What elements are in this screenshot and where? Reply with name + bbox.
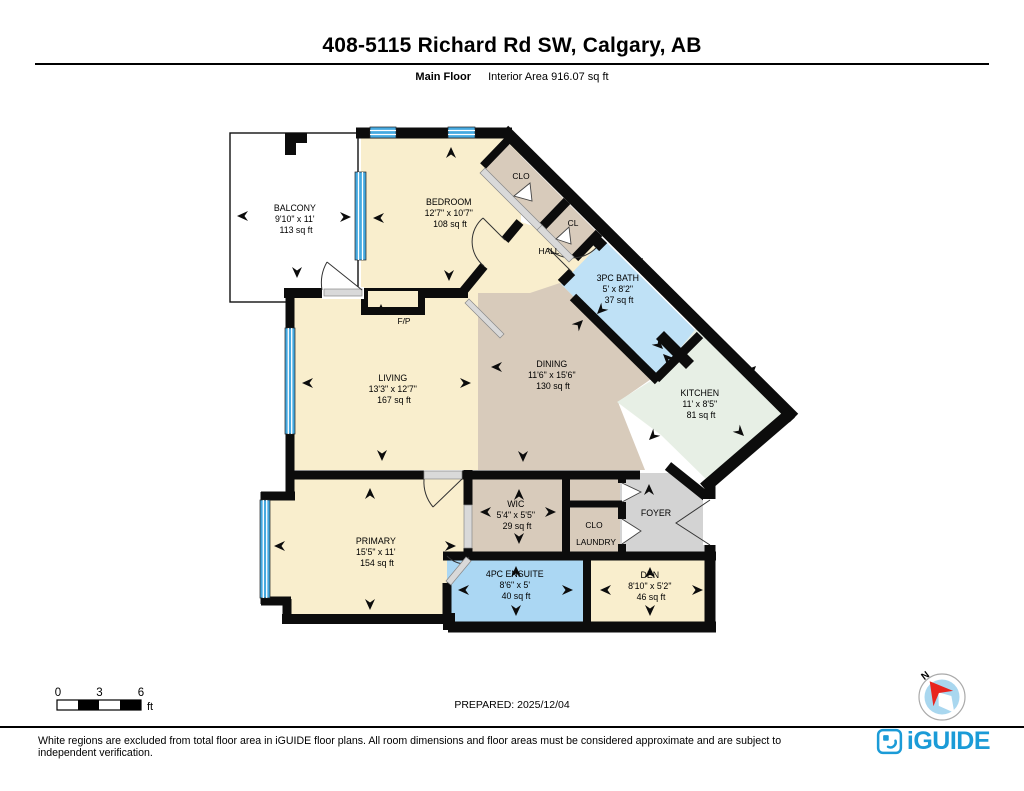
floor-label: Main Floor — [415, 71, 471, 83]
room-label-fp: F/P — [397, 316, 410, 326]
room-label-kitchen: KITCHEN 11' x 8'5" 81 sq ft — [680, 388, 721, 420]
interior-area-label: Interior Area 916.07 sq ft — [488, 71, 608, 83]
header-divider — [35, 63, 989, 65]
balcony-door-sill — [324, 289, 362, 296]
room-label-laundry: LAUNDRY — [576, 537, 616, 547]
page-title: 408-5115 Richard Rd SW, Calgary, AB — [0, 34, 1024, 58]
primary-window — [260, 500, 270, 598]
footer-divider — [0, 726, 1024, 728]
compass-icon: N — [912, 664, 965, 720]
floor-subtitle: Main Floor Interior Area 916.07 sq ft — [0, 71, 1024, 83]
iguide-logo-icon — [876, 728, 903, 755]
bedroom-window-1 — [370, 127, 396, 138]
floorplan-drawing: BALCONY 9'10" x 11' 113 sq ft BEDROOM 12… — [0, 0, 1024, 791]
prepared-date: PREPARED: 2025/12/04 — [0, 699, 1024, 711]
room-label-hall: HALL — [539, 246, 560, 256]
room-label-foyer: FOYER — [641, 508, 671, 518]
primary-door-sill — [424, 471, 462, 479]
room-label-clo-top: CLO — [512, 171, 530, 181]
scale-label-0: 0 — [55, 687, 61, 699]
room-label-cl: CL — [568, 218, 579, 228]
floorplan-page: BALCONY 9'10" x 11' 113 sq ft BEDROOM 12… — [0, 0, 1024, 791]
balcony-window — [355, 172, 366, 260]
room-label-primary: PRIMARY 15'5" x 11' 154 sq ft — [356, 536, 398, 568]
room-label-balcony: BALCONY 9'10" x 11' 113 sq ft — [274, 203, 318, 235]
disclaimer-text: White regions are excluded from total fl… — [38, 735, 828, 759]
bedroom-window-2 — [448, 127, 475, 138]
iguide-logo-text: iGUIDE — [907, 728, 990, 755]
scale-label-6: 6 — [138, 687, 144, 699]
room-label-clo-lower: CLO — [585, 520, 603, 530]
iguide-brand: iGUIDE — [876, 728, 990, 755]
living-window — [285, 328, 295, 434]
wic-slider — [464, 505, 472, 548]
scale-label-3: 3 — [96, 687, 102, 699]
